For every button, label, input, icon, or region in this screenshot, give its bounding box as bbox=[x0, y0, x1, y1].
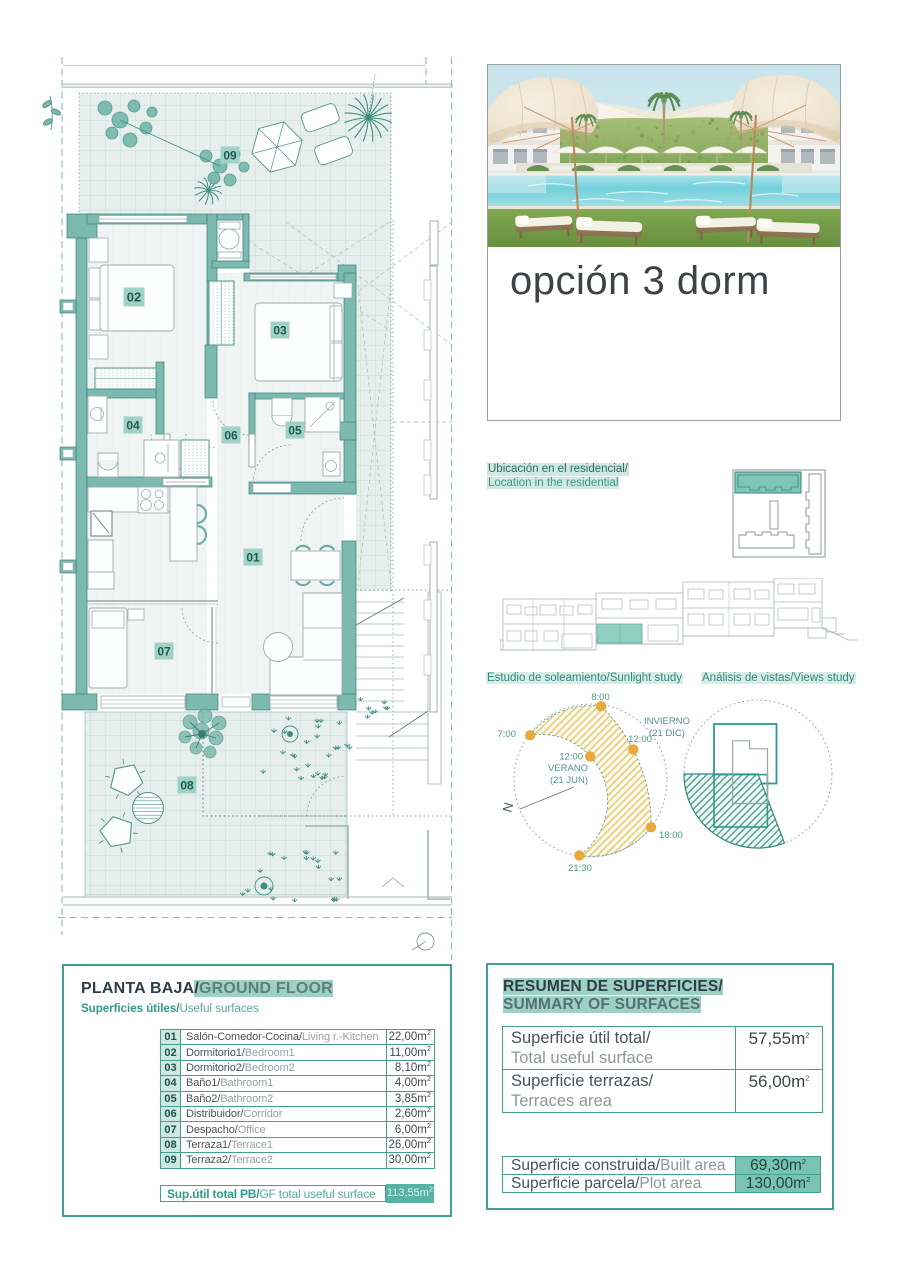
svg-text:7:00: 7:00 bbox=[498, 729, 517, 740]
svg-text:03: 03 bbox=[273, 323, 287, 337]
svg-text:05: 05 bbox=[288, 423, 302, 437]
svg-text:21:30: 21:30 bbox=[568, 863, 592, 874]
svg-text:02: 02 bbox=[127, 290, 141, 305]
svg-text:8:00: 8:00 bbox=[591, 692, 610, 703]
svg-text:04: 04 bbox=[126, 418, 140, 432]
svg-text:09: 09 bbox=[223, 148, 237, 162]
svg-text:06: 06 bbox=[224, 428, 238, 442]
svg-text:(21 JUN): (21 JUN) bbox=[550, 775, 588, 786]
svg-text:12:00: 12:00 bbox=[559, 752, 583, 763]
svg-text:08: 08 bbox=[180, 778, 194, 792]
svg-text:07: 07 bbox=[157, 644, 171, 658]
svg-text:VERANO: VERANO bbox=[548, 763, 588, 774]
svg-text:N: N bbox=[499, 801, 516, 814]
svg-text:01: 01 bbox=[246, 550, 260, 564]
